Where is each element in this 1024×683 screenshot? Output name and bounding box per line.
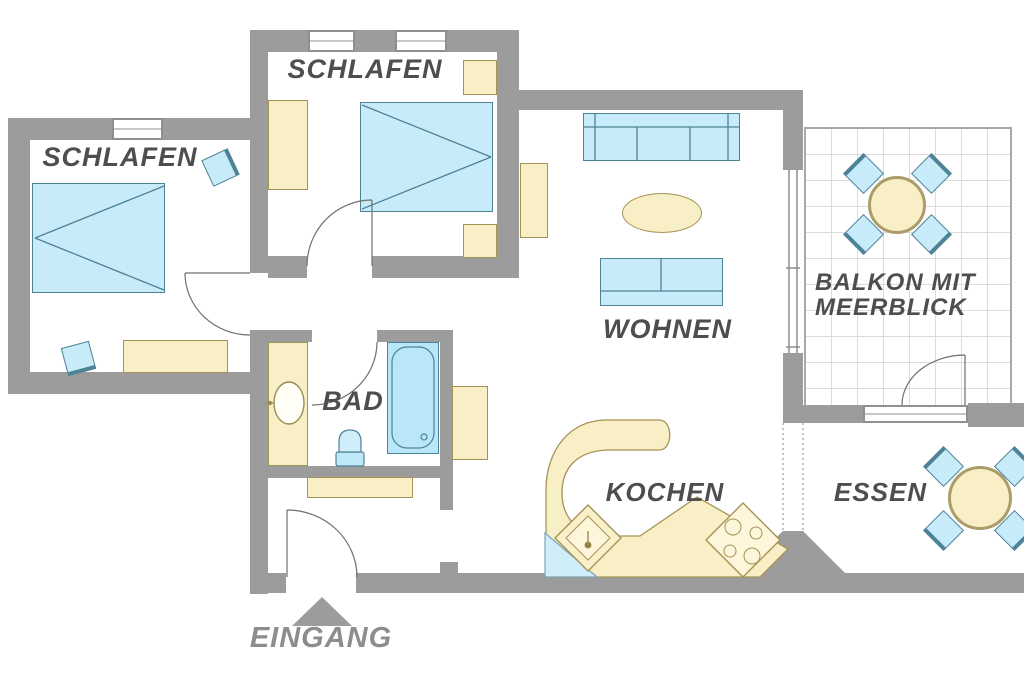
wall [497, 30, 519, 278]
wall [250, 330, 268, 594]
wardrobe [268, 100, 308, 190]
wall [356, 573, 1024, 593]
balcony-label-line1: BALKON MIT [815, 270, 1005, 295]
toilet [336, 430, 364, 466]
wall [783, 405, 863, 423]
floor-plan: SCHLAFEN SCHLAFEN WOHNEN BALKON MIT MEER… [0, 0, 1024, 683]
wall [163, 118, 252, 140]
open-boundary [783, 423, 803, 531]
glass-door [786, 170, 800, 353]
kitchen-sink [555, 505, 621, 571]
entrance-label: EINGANG [231, 622, 411, 655]
wall [250, 573, 286, 593]
window [863, 405, 968, 423]
wall [8, 372, 252, 394]
wall [355, 30, 395, 52]
balcony-tiled-floor [804, 127, 1012, 408]
sofa-small [600, 258, 723, 306]
dresser [123, 340, 228, 373]
window [308, 30, 355, 52]
balcony-table [868, 176, 926, 234]
wall [250, 30, 308, 52]
wall [519, 90, 783, 110]
room-label-dining: ESSEN [818, 477, 943, 508]
window [395, 30, 447, 52]
nightstand [463, 224, 497, 258]
wall [268, 256, 307, 278]
wall-stub [440, 562, 458, 573]
room-label-bedroom-top: SCHLAFEN [280, 54, 450, 85]
wall [372, 256, 519, 278]
chair [61, 341, 97, 377]
balcony-label-line2: MEERBLICK [815, 295, 1005, 320]
double-bed [360, 102, 493, 212]
coffee-table [622, 193, 702, 233]
wall [783, 90, 803, 170]
room-label-bedroom-left: SCHLAFEN [30, 142, 210, 173]
door-arc-bedroom-left [185, 273, 250, 335]
stove [706, 503, 780, 577]
room-label-bath: BAD [303, 386, 403, 417]
wall [968, 403, 1024, 427]
double-bed [32, 183, 165, 293]
room-label-living: WOHNEN [585, 314, 750, 345]
wardrobe [307, 477, 413, 498]
vanity-counter [268, 342, 308, 466]
door-arc-entrance [287, 510, 357, 577]
sideboard [452, 386, 488, 460]
wall [250, 30, 268, 273]
wall-pillar [735, 531, 849, 577]
sofa-large [583, 113, 740, 161]
wall [268, 330, 312, 342]
nightstand [463, 60, 497, 95]
room-label-balcony: BALKON MIT MEERBLICK [815, 270, 1005, 320]
room-label-kitchen: KOCHEN [585, 477, 745, 508]
cabinet [520, 163, 548, 238]
window [112, 118, 163, 140]
wall [377, 330, 440, 342]
wall [8, 118, 30, 394]
kitchen-corner-unit [545, 533, 597, 577]
